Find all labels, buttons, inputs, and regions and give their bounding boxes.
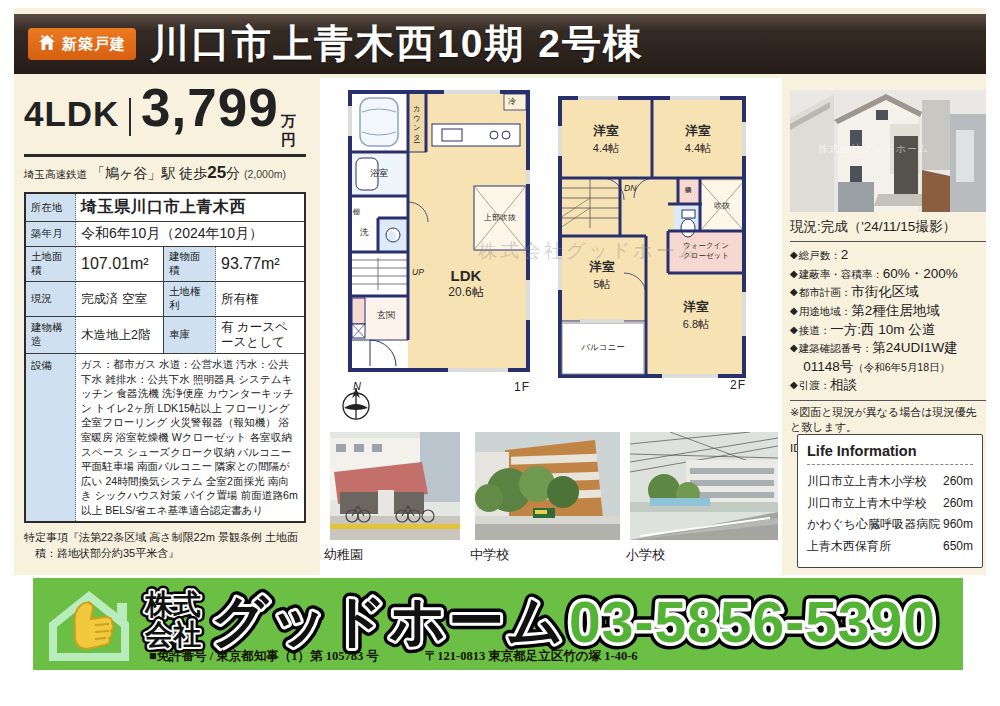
disclaimer-note: ※図面と現況が異なる場合は現況優先と致します。 xyxy=(790,405,986,436)
room-label-ldk: LDK xyxy=(451,268,482,285)
detail-item: ◆都市計画：市街化区域 xyxy=(790,283,986,302)
flyer-page: 新築戸建 川口市上青木西10期 2号棟 4LDK 3,799 万円 埼玉高速鉄道… xyxy=(0,0,1000,706)
station-access: 埼玉高速鉄道「鳩ヶ谷」駅 徒歩25分 (2,000m) xyxy=(24,163,306,183)
detail-value: 市街化区域 xyxy=(851,284,919,299)
spec-value: 93.77m² xyxy=(216,247,304,282)
stairs-up-label: UP xyxy=(412,268,424,277)
room-label-bath: 浴室 xyxy=(370,169,388,179)
spec-value: 木造地上2階 xyxy=(76,317,164,354)
photo-watermark: 株式会社グッドホーム xyxy=(818,142,929,156)
layout-type: 4LDK xyxy=(24,94,119,134)
spec-label: 所在地 xyxy=(26,194,76,222)
photo-kindergarten xyxy=(330,432,460,540)
spec-value: 有 カースペースとして xyxy=(216,317,304,354)
life-item: かわぐち心臓呼吸器病院960m xyxy=(807,514,973,536)
detail-item: ◆接道：一方:西 10m 公道 xyxy=(790,321,986,340)
detail-value: 第2種住居地域 xyxy=(851,303,940,318)
room-size-west2: 4.4帖 xyxy=(685,142,711,154)
stairs-dn-label: DN xyxy=(624,184,636,193)
detail-value-sub: （令和6年5月18日） xyxy=(853,361,950,373)
page-title: 川口市上青木西10期 2号棟 xyxy=(150,17,644,71)
room-label-balcony: バルコニー xyxy=(581,343,624,352)
diamond-bullet: ◆ xyxy=(790,286,798,297)
photo-caption-elementary-school: 小学校 xyxy=(626,546,665,564)
detail-label: 建蔽率・容積率： xyxy=(799,268,883,280)
spec-value: 令和6年10月（2024年10月） xyxy=(76,222,304,247)
room-size-west4: 6.8帖 xyxy=(683,318,709,330)
diamond-bullet: ◆ xyxy=(790,324,798,335)
compass-n-label: N xyxy=(353,380,361,392)
detail-label: 都市計画： xyxy=(799,286,852,298)
spec-table: 所在地 埼玉県川口市上青木西 築年月 令和6年10月（2024年10月） 土地面… xyxy=(24,192,306,523)
floor-label-2f: 2F xyxy=(730,378,746,392)
life-information-title: Life Information xyxy=(807,443,973,465)
room-label-void2f: 吹抜 xyxy=(714,202,730,211)
facility-name: 上青木西保育所 xyxy=(807,536,891,558)
diamond-bullet: ◆ xyxy=(790,249,798,260)
detail-value: 60%・200% xyxy=(883,266,958,281)
detail-label: 建築確認番号： xyxy=(799,342,873,354)
spec-label: 現況 xyxy=(26,282,76,317)
floor-label-1f: 1F xyxy=(514,380,530,394)
svg-text:グッドホーム: グッドホーム xyxy=(211,589,566,652)
detail-item: ◆建築確認番号：第24UDI1W建01148号（令和6年5月18日） xyxy=(790,339,986,376)
detail-item: ◆引渡：相談 xyxy=(790,376,986,395)
facility-name: かわぐち心臓呼吸器病院 xyxy=(807,514,940,536)
life-item: 川口市立上青木中学校260m xyxy=(807,493,973,515)
watermark-text: 株式会社グッドホーム xyxy=(478,238,700,264)
photo-middle-school xyxy=(475,432,620,540)
detail-label: 総戸数： xyxy=(799,249,841,261)
room-label-entrance: 玄関 xyxy=(377,311,395,321)
room-label-counter: カウンター xyxy=(412,100,420,139)
detail-label: 接道： xyxy=(799,324,831,336)
special-notes: 特定事項『法第22条区域 高さ制限22m 景観条例 土地面積：路地状部分約35平… xyxy=(24,530,306,562)
spec-label: 土地面積 xyxy=(26,247,76,282)
detail-label: 用途地域： xyxy=(799,305,852,317)
center-content: カウンター 冷 浴室 棚 洗 UP 玄関 上部吹抜 LDK 20.6帖 1F xyxy=(320,78,782,575)
left-column: 4LDK 3,799 万円 埼玉高速鉄道「鳩ヶ谷」駅 徒歩25分 (2,000m… xyxy=(24,84,306,562)
room-label-wash: 洗 xyxy=(360,228,369,237)
floorplan-1f-drawing xyxy=(348,90,530,378)
diamond-bullet: ◆ xyxy=(790,268,798,279)
diamond-bullet: ◆ xyxy=(790,342,798,353)
life-item: 上青木西保育所650m xyxy=(807,536,973,558)
detail-label: 引渡： xyxy=(799,379,831,391)
facility-distance: 260m xyxy=(943,493,973,515)
property-photo-caption: 現況:完成（'24/11/15撮影） xyxy=(790,218,986,236)
spec-value: 所有権 xyxy=(216,282,304,317)
facility-name: 川口市立上青木中学校 xyxy=(807,493,927,515)
photo-elementary-school xyxy=(630,432,778,540)
divider xyxy=(790,400,986,401)
facility-distance: 260m xyxy=(943,471,973,493)
price-block: 4LDK 3,799 万円 xyxy=(24,84,306,157)
svg-text:03-5856-5390: 03-5856-5390 xyxy=(569,590,936,654)
photo-property-exterior: 株式会社グッドホーム xyxy=(790,90,986,212)
room-size-west3: 5帖 xyxy=(593,278,610,290)
spec-label: 築年月 xyxy=(26,222,76,247)
spec-label: 土地権利 xyxy=(164,282,216,317)
right-column: 株式会社グッドホーム 現況:完成（'24/11/15撮影） ◆総戸数：2 ◆建蔽… xyxy=(790,90,986,454)
new-build-badge: 新築戸建 xyxy=(28,28,136,60)
life-information-list: 川口市立上青木小学校260m 川口市立上青木中学校260m かわぐち心臓呼吸器病… xyxy=(807,471,973,557)
detail-item: ◆建蔽率・容積率：60%・200% xyxy=(790,265,986,284)
room-label-west1: 洋室 xyxy=(594,125,619,139)
room-label-fridge: 冷 xyxy=(508,98,516,107)
company-banner: 株式 株式 株式 会社 会社 会社 グッドホーム グッドホーム グッドホーム 0… xyxy=(33,578,963,670)
header-bar: 新築戸建 川口市上青木西10期 2号棟 xyxy=(14,14,986,74)
spec-label: 車庫 xyxy=(164,317,216,354)
minutes-unit: 分 xyxy=(226,165,240,181)
spec-label: 設備 xyxy=(26,354,76,521)
walk-distance: (2,000m) xyxy=(244,168,286,180)
license-line: ■免許番号 / 東京都知事（1）第 105783 号 〒121-0813 東京都… xyxy=(149,648,949,665)
spec-label: 建物構造 xyxy=(26,317,76,354)
compass: N xyxy=(336,378,376,430)
life-item: 川口市立上青木小学校260m xyxy=(807,471,973,493)
photo-caption-middle-school: 中学校 xyxy=(470,546,509,564)
station-name: 「鳩ヶ谷」駅 徒歩 xyxy=(91,165,207,181)
spec-value: 107.01m² xyxy=(76,247,164,282)
facility-distance: 960m xyxy=(943,514,973,536)
room-label-void1f: 上部吹抜 xyxy=(484,214,516,223)
diamond-bullet: ◆ xyxy=(790,305,798,316)
company-address: 〒121-0813 東京都足立区竹の塚 1-40-6 xyxy=(425,648,638,665)
svg-text:会社: 会社 xyxy=(144,619,201,650)
walk-minutes: 25 xyxy=(207,163,226,182)
divider xyxy=(790,241,986,242)
room-size-west1: 4.4帖 xyxy=(593,142,619,154)
railway-name: 埼玉高速鉄道 xyxy=(24,168,87,180)
price-amount: 3,799 xyxy=(141,84,279,132)
detail-value: 一方:西 10m 公道 xyxy=(830,322,935,337)
room-size-ldk: 20.6帖 xyxy=(448,286,483,299)
spec-value: 埼玉県川口市上青木西 xyxy=(76,194,304,222)
detail-value: 相談 xyxy=(830,377,857,392)
detail-item: ◆総戸数：2 xyxy=(790,246,986,265)
detail-value: 2 xyxy=(841,247,849,262)
house-icon xyxy=(38,34,56,55)
badge-label: 新築戸建 xyxy=(62,35,126,54)
svg-text:株式: 株式 xyxy=(144,589,201,620)
room-label-west2: 洋室 xyxy=(686,125,711,139)
life-information-box: Life Information 川口市立上青木小学校260m 川口市立上青木中… xyxy=(797,434,983,568)
equipment-text: ガス：都市ガス 水道：公営水道 汚水：公共下水 雑排水：公共下水 照明器具 シス… xyxy=(81,357,299,518)
diamond-bullet: ◆ xyxy=(790,379,798,390)
photo-caption-kindergarten: 幼稚園 xyxy=(324,546,363,564)
facility-photos: 幼稚園 中学校 小学校 xyxy=(320,430,782,565)
room-label-west4: 洋室 xyxy=(684,301,709,315)
spec-label: 建物面積 xyxy=(164,247,216,282)
floorplan-1f: カウンター 冷 浴室 棚 洗 UP 玄関 上部吹抜 LDK 20.6帖 1F xyxy=(348,90,530,378)
facility-name: 川口市立上青木小学校 xyxy=(807,471,927,493)
price-divider xyxy=(129,98,131,136)
license-number: ■免許番号 / 東京都知事（1）第 105783 号 xyxy=(149,648,379,665)
spec-value: 完成済 空室 xyxy=(76,282,164,317)
facility-distance: 650m xyxy=(943,536,973,558)
price-unit: 万円 xyxy=(281,112,306,150)
detail-item: ◆用途地域：第2種住居地域 xyxy=(790,302,986,321)
